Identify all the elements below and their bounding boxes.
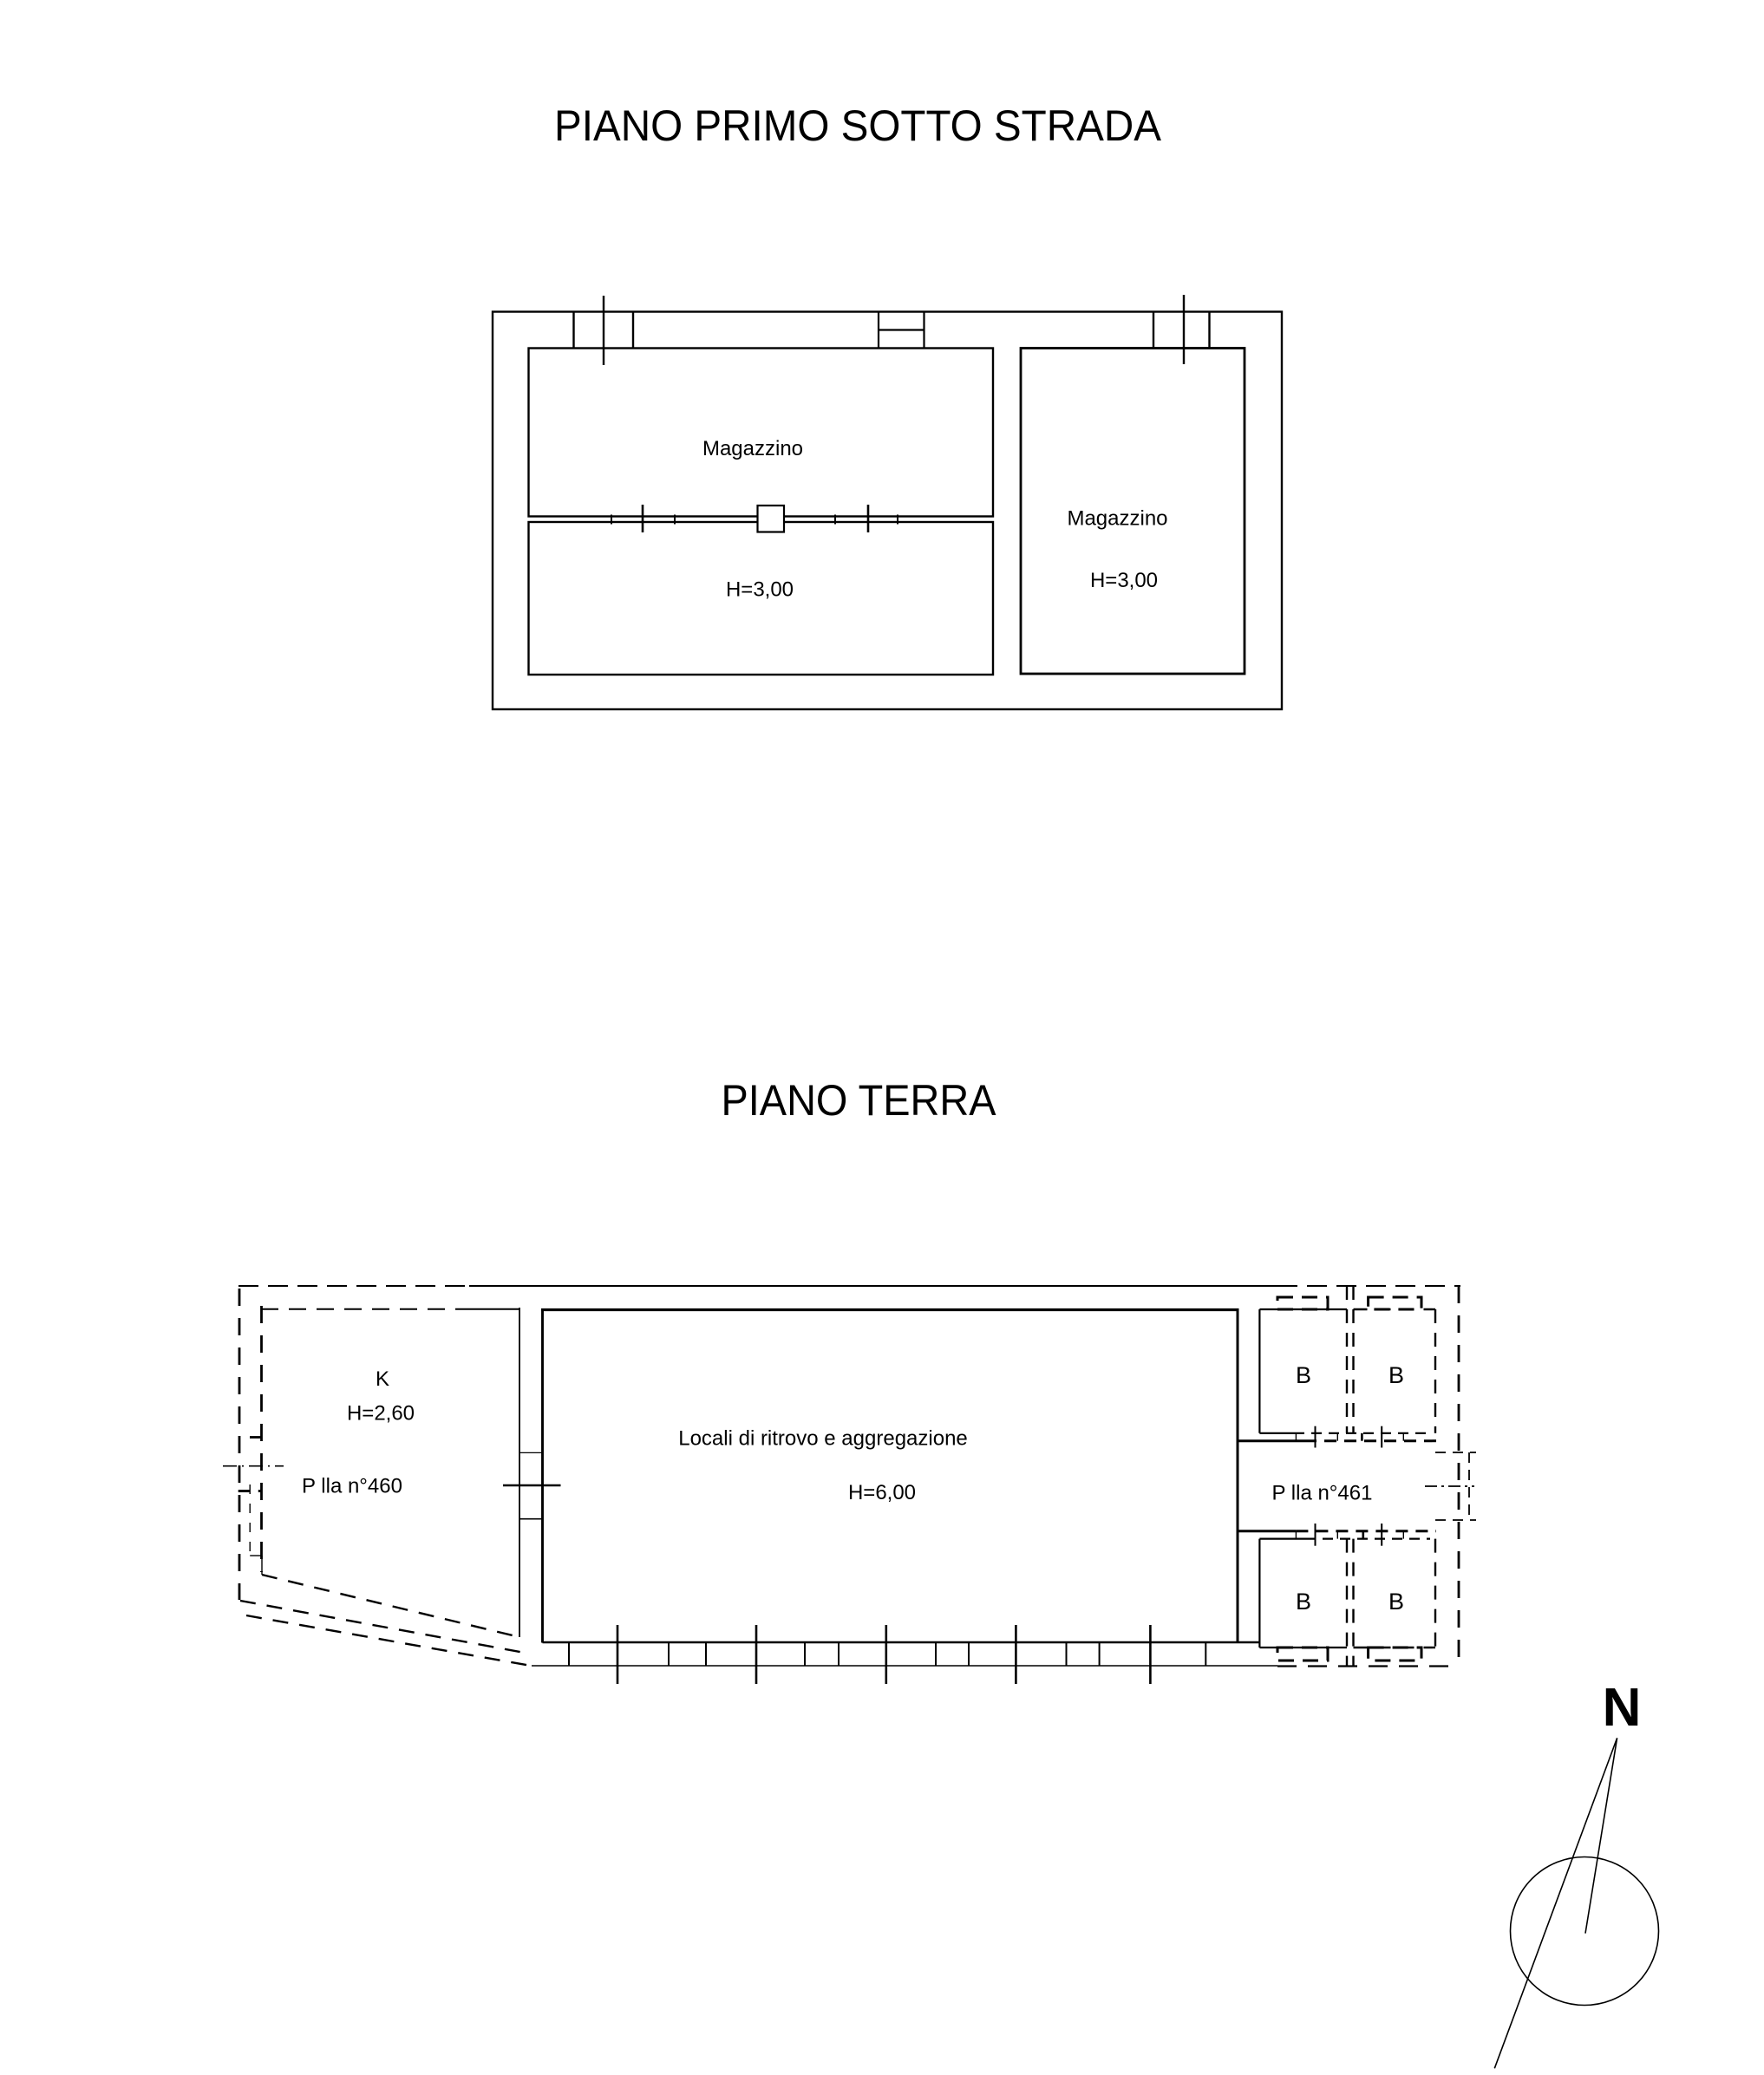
svg-text:H=6,00: H=6,00 [848, 1481, 916, 1504]
svg-text:B: B [1296, 1362, 1311, 1388]
svg-text:PIANO TERRA: PIANO TERRA [722, 1076, 997, 1125]
svg-text:Magazzino: Magazzino [1067, 507, 1167, 531]
svg-text:B: B [1296, 1589, 1311, 1615]
svg-text:H=2,60: H=2,60 [347, 1402, 415, 1426]
svg-text:P lla n°460: P lla n°460 [302, 1475, 402, 1498]
svg-text:K: K [376, 1367, 389, 1391]
svg-text:H=3,00: H=3,00 [1090, 569, 1158, 592]
svg-text:B: B [1388, 1589, 1404, 1615]
svg-text:N: N [1603, 1678, 1642, 1738]
svg-text:PIANO PRIMO SOTTO STRADA: PIANO PRIMO SOTTO STRADA [554, 101, 1162, 150]
svg-text:H=3,00: H=3,00 [726, 578, 794, 602]
svg-text:B: B [1388, 1362, 1404, 1388]
svg-text:P lla n°461: P lla n°461 [1272, 1482, 1373, 1505]
svg-text:Locali di ritrovo e aggregazio: Locali di ritrovo e aggregazione [678, 1427, 968, 1451]
svg-text:Magazzino: Magazzino [702, 437, 803, 460]
